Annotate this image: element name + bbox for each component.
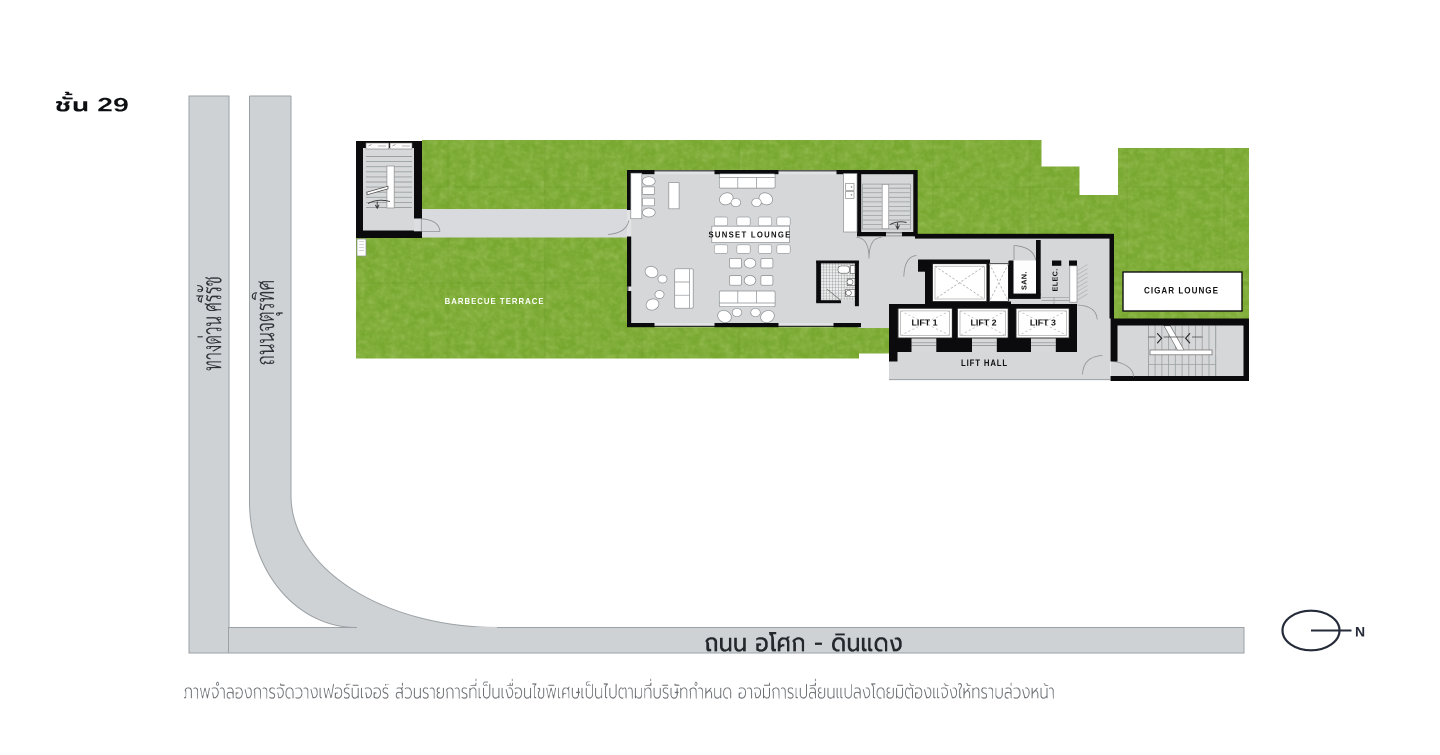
svg-text:LIFT 1: LIFT 1 bbox=[912, 318, 939, 327]
svg-text:LIFT 2: LIFT 2 bbox=[971, 318, 998, 327]
svg-text:LIFT HALL: LIFT HALL bbox=[961, 358, 1008, 368]
svg-text:BARBECUE TERRACE: BARBECUE TERRACE bbox=[445, 297, 545, 306]
svg-text:CIGAR LOUNGE: CIGAR LOUNGE bbox=[1144, 285, 1219, 296]
svg-text:ELEC.: ELEC. bbox=[1051, 268, 1060, 291]
svg-text:SUNSET LOUNGE: SUNSET LOUNGE bbox=[709, 229, 792, 239]
svg-text:SAN.: SAN. bbox=[1020, 271, 1029, 290]
svg-text:N: N bbox=[1355, 624, 1365, 640]
svg-text:LIFT 3: LIFT 3 bbox=[1030, 318, 1057, 327]
